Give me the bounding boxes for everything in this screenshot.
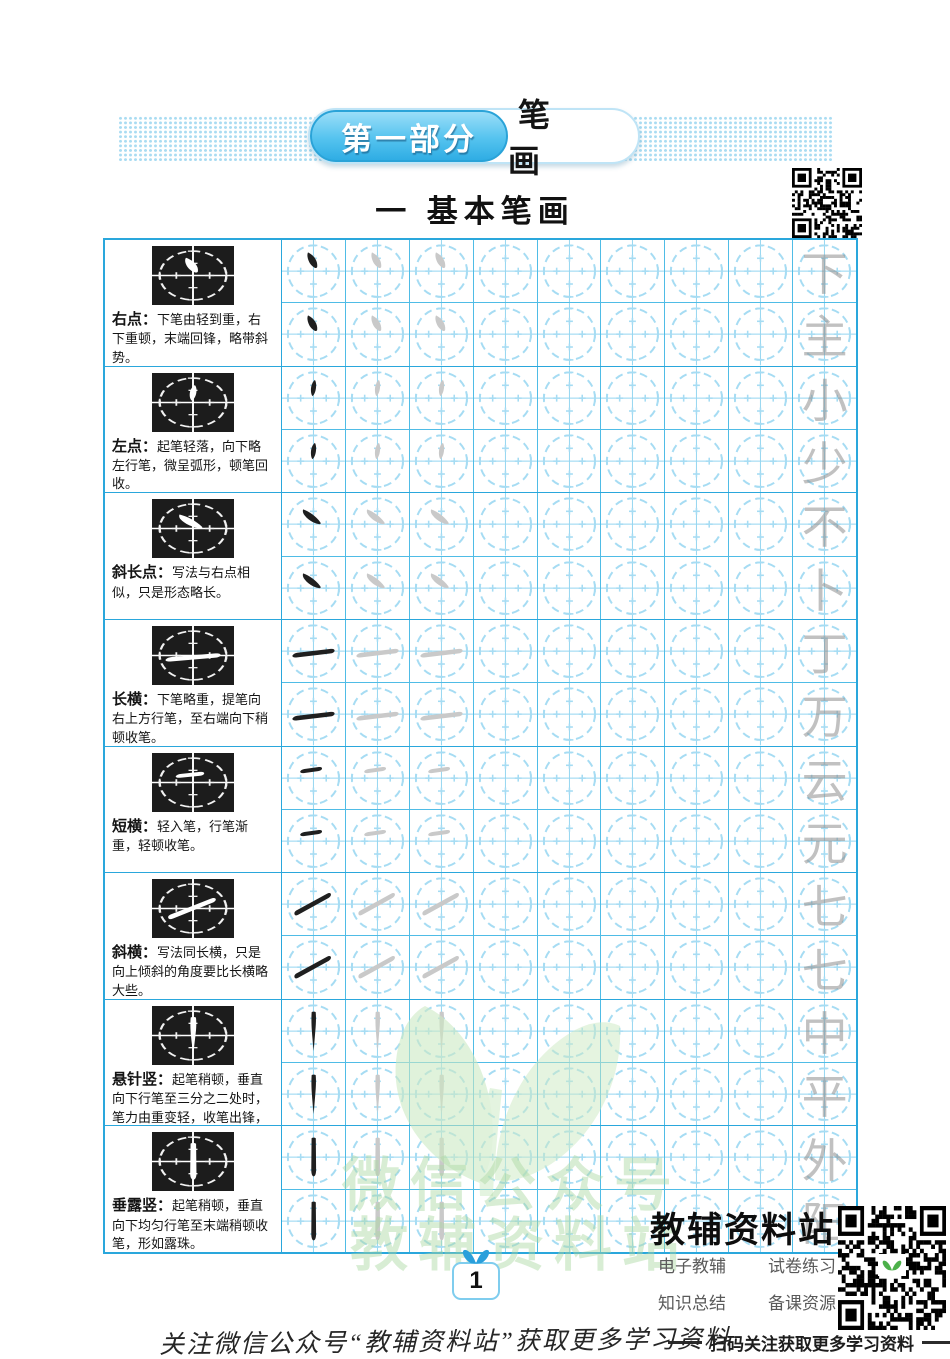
- practice-cell: [600, 303, 664, 365]
- stroke-row: 右点：下笔由轻到重，右下重顿，末端回锋，略带斜势。下主: [105, 240, 856, 367]
- practice-cell: [409, 303, 473, 365]
- service-item: 试卷练习: [768, 1252, 836, 1277]
- part-badge-title: 笔 画: [508, 110, 638, 162]
- practice-cell: [664, 620, 728, 682]
- practice-cell: [409, 810, 473, 872]
- practice-cell: [473, 1063, 537, 1125]
- stroke-sample-square: [152, 1132, 234, 1191]
- practice-cell: [345, 810, 409, 872]
- practice-cell: [345, 430, 409, 492]
- practice-cell: [345, 683, 409, 745]
- practice-cell: [345, 557, 409, 619]
- practice-cell: [473, 303, 537, 365]
- qr-code-bottom: [838, 1206, 946, 1330]
- practice-cell: [728, 936, 792, 998]
- practice-cell: [473, 240, 537, 302]
- practice-cell: [728, 1000, 792, 1062]
- stroke-description-text: 斜长点：写法与右点相似，只是形态略长。: [105, 562, 281, 602]
- practice-cell: [409, 747, 473, 809]
- practice-cell: [537, 240, 601, 302]
- practice-cell: [282, 1126, 345, 1188]
- practice-cell: [537, 1063, 601, 1125]
- practice-cell: [345, 873, 409, 935]
- stroke-sample-square: [152, 499, 234, 558]
- practice-cell: [728, 493, 792, 555]
- practice-cell: [664, 1063, 728, 1125]
- practice-cell: [282, 367, 345, 429]
- stroke-description: 垂露竖：起笔稍顿，垂直向下均匀行笔至末端稍顿收笔，形如露珠。: [105, 1126, 282, 1252]
- stroke-table: 右点：下笔由轻到重，右下重顿，末端回锋，略带斜势。下主左点：起笔轻落，向下略左行…: [103, 238, 858, 1254]
- stroke-sample-square: [152, 753, 234, 812]
- practice-cell: [345, 303, 409, 365]
- practice-cell: [728, 810, 792, 872]
- stroke-description: 短横：轻入笔，行笔渐重，轻顿收笔。: [105, 747, 282, 873]
- practice-cell: [600, 430, 664, 492]
- practice-area: 不卜: [282, 493, 856, 619]
- practice-cell: [537, 367, 601, 429]
- practice-cell: 卜: [792, 557, 856, 619]
- practice-cell: [409, 240, 473, 302]
- practice-cell: [537, 747, 601, 809]
- stroke-sample-square: [152, 246, 234, 305]
- stroke-sample-square: [152, 626, 234, 685]
- practice-cell: 平: [792, 1063, 856, 1125]
- practice-cell: [409, 367, 473, 429]
- practice-cell: [728, 1126, 792, 1188]
- colon: ：: [142, 944, 157, 961]
- colon: ：: [157, 1197, 172, 1214]
- practice-cell: 丁: [792, 620, 856, 682]
- practice-cell: [473, 873, 537, 935]
- practice-cell: [345, 1126, 409, 1188]
- practice-cell: [600, 240, 664, 302]
- practice-cell: [282, 240, 345, 302]
- stroke-description-text: 悬针竖：起笔稍顿，垂直向下行笔至三分之二处时，笔力由重变轻，收笔出锋，形如银针。: [105, 1069, 281, 1126]
- practice-cell: [282, 683, 345, 745]
- practice-cell: [473, 430, 537, 492]
- practice-cell: [409, 683, 473, 745]
- example-character: 不: [793, 493, 856, 555]
- practice-cell: [473, 683, 537, 745]
- practice-cell: [728, 683, 792, 745]
- practice-cell: [345, 747, 409, 809]
- practice-cell: [282, 493, 345, 555]
- practice-subrow: 中: [282, 1000, 856, 1062]
- stroke-name: 长横: [112, 691, 142, 708]
- practice-subrow: 七: [282, 935, 856, 998]
- stroke-description-text: 右点：下笔由轻到重，右下重顿，末端回锋，略带斜势。: [105, 309, 281, 366]
- practice-cell: [409, 1000, 473, 1062]
- part-badge: 第一部分 笔 画: [308, 108, 640, 164]
- practice-cell: [664, 810, 728, 872]
- stroke-description: 右点：下笔由轻到重，右下重顿，末端回锋，略带斜势。: [105, 240, 282, 366]
- practice-cell: [600, 747, 664, 809]
- practice-subrow: 云: [282, 747, 856, 809]
- stroke-row: 斜长点：写法与右点相似，只是形态略长。不卜: [105, 493, 856, 620]
- practice-cell: [537, 303, 601, 365]
- practice-cell: [537, 620, 601, 682]
- practice-cell: [282, 303, 345, 365]
- practice-area: 丁万: [282, 620, 856, 746]
- practice-cell: [537, 557, 601, 619]
- practice-cell: [473, 367, 537, 429]
- colon: ：: [142, 311, 157, 328]
- practice-cell: [537, 430, 601, 492]
- practice-cell: [537, 1126, 601, 1188]
- example-character: 丁: [793, 620, 856, 682]
- practice-area: 七七: [282, 873, 856, 999]
- bottom-note: 关注微信公众号“教辅资料站”获取更多学习资料: [120, 1319, 770, 1359]
- practice-cell: [664, 1000, 728, 1062]
- practice-cell: [664, 936, 728, 998]
- practice-subrow: 丁: [282, 620, 856, 682]
- practice-cell: 外: [792, 1126, 856, 1188]
- stroke-row: 斜横：写法同长横，只是向上倾斜的角度要比长横略大些。七七: [105, 873, 856, 1000]
- practice-cell: [600, 810, 664, 872]
- practice-cell: [473, 747, 537, 809]
- practice-cell: 少: [792, 430, 856, 492]
- practice-area: 下主: [282, 240, 856, 366]
- practice-cell: [409, 936, 473, 998]
- example-character: 中: [793, 1000, 856, 1062]
- practice-cell: 七: [792, 936, 856, 998]
- example-character: 外: [793, 1126, 856, 1188]
- example-character: 平: [793, 1063, 856, 1125]
- practice-cell: 万: [792, 683, 856, 745]
- practice-subrow: 外: [282, 1126, 856, 1188]
- practice-cell: [728, 620, 792, 682]
- butterfly-logo-icon: [878, 1254, 906, 1276]
- example-character: 下: [793, 240, 856, 302]
- practice-cell: [664, 747, 728, 809]
- practice-subrow: 万: [282, 682, 856, 745]
- practice-cell: [728, 557, 792, 619]
- service-item: 电子教辅: [658, 1252, 726, 1277]
- stroke-description-text: 长横：下笔略重，提笔向右上方行笔，至右端向下稍顿收笔。: [105, 689, 281, 746]
- colon: ：: [157, 1071, 172, 1088]
- practice-area: 云元: [282, 747, 856, 873]
- colon: ：: [142, 691, 157, 708]
- practice-cell: [473, 1000, 537, 1062]
- practice-cell: [537, 1190, 601, 1252]
- colon: ：: [142, 818, 157, 835]
- practice-cell: [600, 1126, 664, 1188]
- practice-cell: [473, 1126, 537, 1188]
- stroke-name: 斜长点: [112, 564, 157, 581]
- practice-cell: [282, 1000, 345, 1062]
- practice-cell: [409, 430, 473, 492]
- practice-subrow: 不: [282, 493, 856, 555]
- stroke-name: 垂露竖: [112, 1197, 157, 1214]
- stroke-name: 短横: [112, 818, 142, 835]
- practice-cell: [728, 240, 792, 302]
- page-number: 1: [452, 1262, 500, 1300]
- practice-cell: [600, 1000, 664, 1062]
- example-character: 少: [793, 430, 856, 492]
- stroke-description: 斜长点：写法与右点相似，只是形态略长。: [105, 493, 282, 619]
- practice-cell: [600, 936, 664, 998]
- part-badge-label: 第一部分: [310, 110, 508, 162]
- example-character: 小: [793, 367, 856, 429]
- practice-cell: [345, 1190, 409, 1252]
- stroke-description-text: 短横：轻入笔，行笔渐重，轻顿收笔。: [105, 816, 281, 856]
- practice-cell: [473, 557, 537, 619]
- practice-cell: [600, 683, 664, 745]
- practice-cell: [345, 936, 409, 998]
- practice-cell: 小: [792, 367, 856, 429]
- stroke-sample-square: [152, 373, 234, 432]
- service-item: 知识总结: [658, 1289, 726, 1314]
- practice-cell: [664, 557, 728, 619]
- stroke-description: 斜横：写法同长横，只是向上倾斜的角度要比长横略大些。: [105, 873, 282, 999]
- practice-cell: 主: [792, 303, 856, 365]
- stroke-description: 长横：下笔略重，提笔向右上方行笔，至右端向下稍顿收笔。: [105, 620, 282, 746]
- practice-cell: [600, 367, 664, 429]
- practice-cell: [282, 620, 345, 682]
- practice-cell: [409, 620, 473, 682]
- stroke-row: 短横：轻入笔，行笔渐重，轻顿收笔。云元: [105, 747, 856, 874]
- page-number-butterfly-icon: [458, 1247, 494, 1265]
- practice-subrow: 元: [282, 809, 856, 872]
- practice-cell: [473, 936, 537, 998]
- practice-cell: [600, 493, 664, 555]
- site-name: 教辅资料站: [650, 1202, 835, 1253]
- colon: ：: [157, 564, 172, 581]
- practice-subrow: 平: [282, 1062, 856, 1125]
- practice-cell: [282, 873, 345, 935]
- practice-cell: [664, 367, 728, 429]
- practice-cell: [664, 1126, 728, 1188]
- practice-area: 小少: [282, 367, 856, 493]
- practice-cell: [600, 873, 664, 935]
- stroke-row: 长横：下笔略重，提笔向右上方行笔，至右端向下稍顿收笔。丁万: [105, 620, 856, 747]
- practice-cell: [409, 1063, 473, 1125]
- practice-cell: [537, 1000, 601, 1062]
- practice-cell: [345, 1063, 409, 1125]
- practice-cell: [282, 810, 345, 872]
- practice-cell: [345, 620, 409, 682]
- service-item: 备课资源: [768, 1289, 836, 1314]
- practice-cell: 不: [792, 493, 856, 555]
- practice-cell: [282, 557, 345, 619]
- stroke-name: 左点: [112, 438, 142, 455]
- practice-cell: [473, 1190, 537, 1252]
- practice-cell: [282, 747, 345, 809]
- practice-cell: [537, 493, 601, 555]
- practice-cell: 元: [792, 810, 856, 872]
- practice-cell: [409, 493, 473, 555]
- example-character: 七: [793, 936, 856, 998]
- practice-cell: [282, 1063, 345, 1125]
- colon: ：: [142, 438, 157, 455]
- practice-cell: [600, 620, 664, 682]
- practice-cell: [664, 240, 728, 302]
- stroke-sample-square: [152, 1006, 234, 1065]
- service-list: 电子教辅 试卷练习 知识总结 备课资源: [658, 1252, 836, 1314]
- practice-cell: [664, 493, 728, 555]
- practice-cell: [664, 683, 728, 745]
- stroke-description-text: 左点：起笔轻落，向下略左行笔，微呈弧形，顿笔回收。: [105, 436, 281, 493]
- practice-cell: [537, 873, 601, 935]
- practice-cell: [345, 367, 409, 429]
- practice-cell: [409, 557, 473, 619]
- workbook-page: 第一部分 笔 画 一 基本笔画 右点：下笔由轻到重，右下重顿，末端回锋，略带斜势…: [0, 0, 950, 1359]
- practice-cell: [537, 683, 601, 745]
- practice-cell: [345, 240, 409, 302]
- practice-cell: [728, 1063, 792, 1125]
- stroke-row: 左点：起笔轻落，向下略左行笔，微呈弧形，顿笔回收。小少: [105, 367, 856, 494]
- practice-subrow: 小: [282, 367, 856, 429]
- practice-cell: [537, 810, 601, 872]
- practice-subrow: 下: [282, 240, 856, 302]
- practice-cell: 中: [792, 1000, 856, 1062]
- practice-cell: [728, 303, 792, 365]
- practice-cell: [282, 1190, 345, 1252]
- example-character: 万: [793, 683, 856, 745]
- practice-cell: [664, 430, 728, 492]
- practice-cell: [728, 873, 792, 935]
- stroke-description: 左点：起笔轻落，向下略左行笔，微呈弧形，顿笔回收。: [105, 367, 282, 493]
- example-character: 卜: [793, 557, 856, 619]
- practice-cell: [600, 557, 664, 619]
- practice-subrow: 卜: [282, 556, 856, 619]
- practice-cell: [728, 430, 792, 492]
- example-character: 主: [793, 303, 856, 365]
- practice-cell: [409, 873, 473, 935]
- stroke-description-text: 斜横：写法同长横，只是向上倾斜的角度要比长横略大些。: [105, 942, 281, 999]
- practice-area: 中平: [282, 1000, 856, 1126]
- practice-cell: [345, 493, 409, 555]
- practice-cell: [282, 430, 345, 492]
- practice-cell: [345, 1000, 409, 1062]
- stroke-description-text: 垂露竖：起笔稍顿，垂直向下均匀行笔至末端稍顿收笔，形如露珠。: [105, 1195, 281, 1252]
- practice-cell: [537, 936, 601, 998]
- practice-cell: [409, 1190, 473, 1252]
- practice-cell: [473, 810, 537, 872]
- example-character: 元: [793, 810, 856, 872]
- stroke-sample-square: [152, 879, 234, 938]
- practice-cell: [728, 367, 792, 429]
- practice-subrow: 七: [282, 873, 856, 935]
- practice-cell: [282, 936, 345, 998]
- stroke-name: 斜横: [112, 944, 142, 961]
- practice-subrow: 少: [282, 429, 856, 492]
- practice-cell: [664, 303, 728, 365]
- stroke-name: 悬针竖: [112, 1071, 157, 1088]
- practice-cell: 七: [792, 873, 856, 935]
- dash-line: [922, 1341, 950, 1344]
- practice-cell: [664, 873, 728, 935]
- stroke-row: 悬针竖：起笔稍顿，垂直向下行笔至三分之二处时，笔力由重变轻，收笔出锋，形如银针。…: [105, 1000, 856, 1127]
- stroke-name: 右点: [112, 311, 142, 328]
- practice-subrow: 主: [282, 302, 856, 365]
- example-character: 七: [793, 873, 856, 935]
- practice-cell: [473, 493, 537, 555]
- practice-cell: [409, 1126, 473, 1188]
- practice-cell: 下: [792, 240, 856, 302]
- practice-cell: 云: [792, 747, 856, 809]
- practice-cell: [728, 747, 792, 809]
- qr-code-top: [792, 168, 862, 238]
- practice-cell: [600, 1063, 664, 1125]
- example-character: 云: [793, 747, 856, 809]
- stroke-description: 悬针竖：起笔稍顿，垂直向下行笔至三分之二处时，笔力由重变轻，收笔出锋，形如银针。: [105, 1000, 282, 1126]
- practice-cell: [473, 620, 537, 682]
